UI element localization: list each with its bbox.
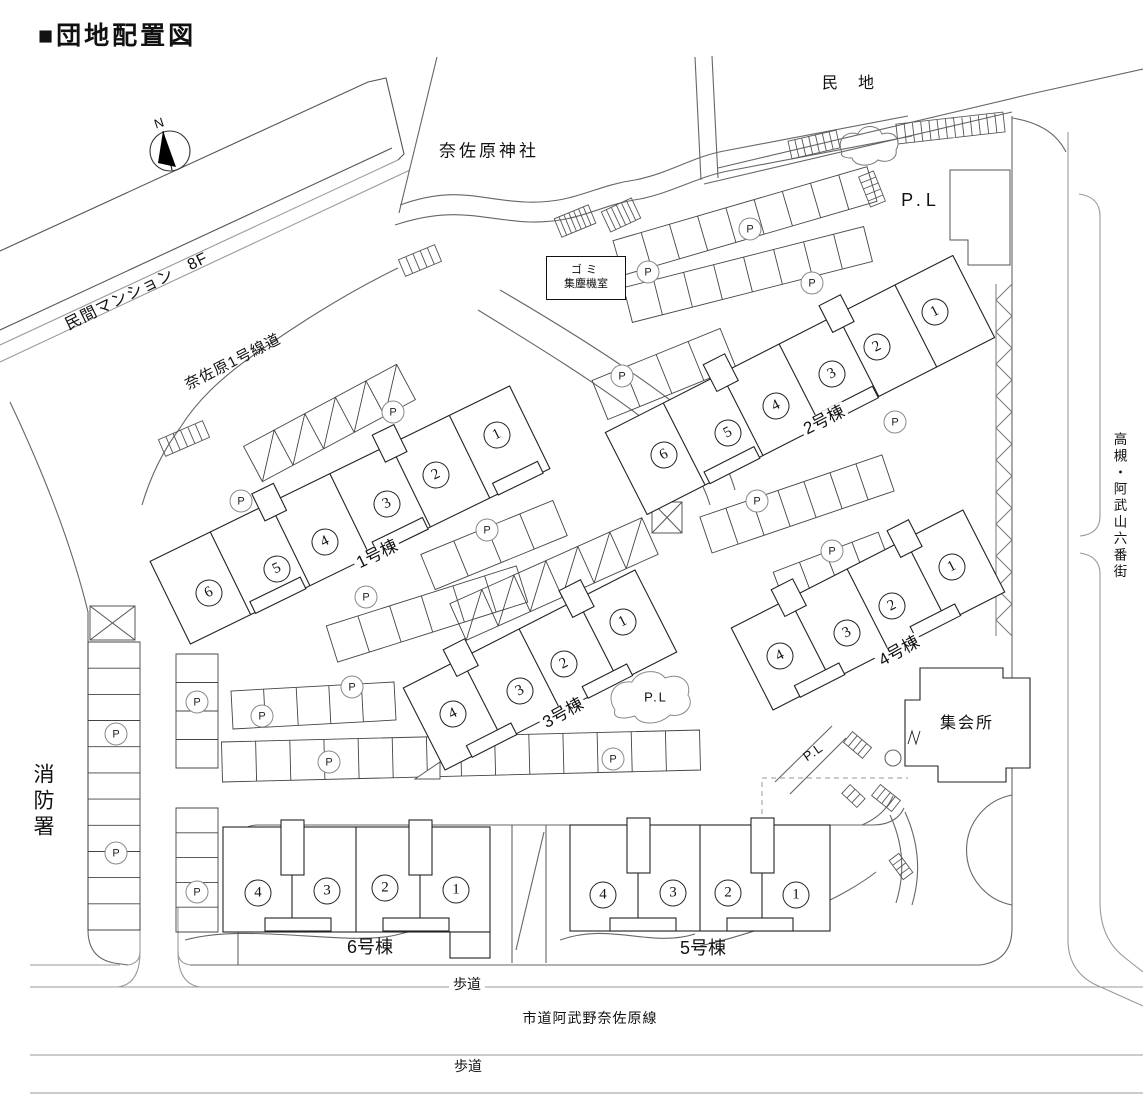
parking-p: P: [739, 218, 762, 241]
mansion-outline: [0, 78, 404, 330]
parking-p: P: [186, 881, 209, 904]
city-road-label: 市道阿武野奈佐原線: [523, 1011, 658, 1025]
street-east-label: 高槻・阿武山六番街: [1112, 432, 1126, 581]
parking-p: P: [105, 723, 128, 746]
fire-station-label: 消防署: [32, 763, 53, 841]
shrine-label: 奈佐原神社: [439, 143, 539, 160]
building-5-label: 5号棟: [680, 939, 726, 957]
parking-p: P: [476, 519, 499, 542]
building-5-outline: [570, 818, 830, 931]
parking-p: P: [251, 705, 274, 728]
building-6-unit-4: 4: [245, 880, 272, 907]
building-6-label: 6号棟: [347, 938, 393, 956]
building-6-unit-3: 3: [314, 878, 341, 905]
page-title: ■団地配置図: [38, 16, 196, 52]
parking-p: P: [341, 676, 364, 699]
building-5-unit-3: 3: [660, 880, 687, 907]
building-5-unit-2: 2: [715, 880, 742, 907]
parking-p: P: [821, 540, 844, 563]
parking-p: P: [746, 490, 769, 513]
parking-p: P: [801, 272, 824, 295]
dashed-boundary: [762, 778, 908, 832]
building-5-unit-1: 1: [783, 882, 810, 909]
parking-p: P: [637, 261, 660, 284]
parking-p: P: [884, 411, 907, 434]
sidewalk-label-south: 歩道: [454, 1059, 482, 1073]
parking-p: P: [318, 751, 341, 774]
sidewalk-label-north: 歩道: [449, 977, 485, 991]
north-compass: [150, 131, 190, 171]
building-6-unit-2: 2: [372, 875, 399, 902]
building-6-unit-1: 1: [443, 877, 470, 904]
garbage-room-line1: ゴミ: [571, 264, 601, 278]
building-5-unit-4: 4: [590, 882, 617, 909]
parking-p: P: [105, 842, 128, 865]
private-land-label: 民 地: [822, 76, 876, 92]
parking-p: P: [602, 748, 625, 771]
garbage-room-box: ゴミ 集塵機室: [546, 256, 626, 300]
garbage-room-line2: 集塵機室: [564, 278, 608, 292]
building-2-outline: [598, 241, 995, 515]
parking-p: P: [611, 365, 634, 388]
site-plan: ■団地配置図 N 奈佐原神社 民 地 民間マンション 8F 奈佐原1号線道 P.…: [0, 0, 1143, 1098]
parking-p: P: [186, 691, 209, 714]
parking-p: P: [230, 490, 253, 513]
parking-p: P: [355, 586, 378, 609]
site-plan-linework: [0, 0, 1143, 1098]
meeting-hall-label: 集会所: [940, 716, 994, 732]
pl-label-north: P.L: [901, 191, 941, 209]
pl-label-center: P.L: [644, 691, 668, 704]
parking-p: P: [382, 401, 405, 424]
